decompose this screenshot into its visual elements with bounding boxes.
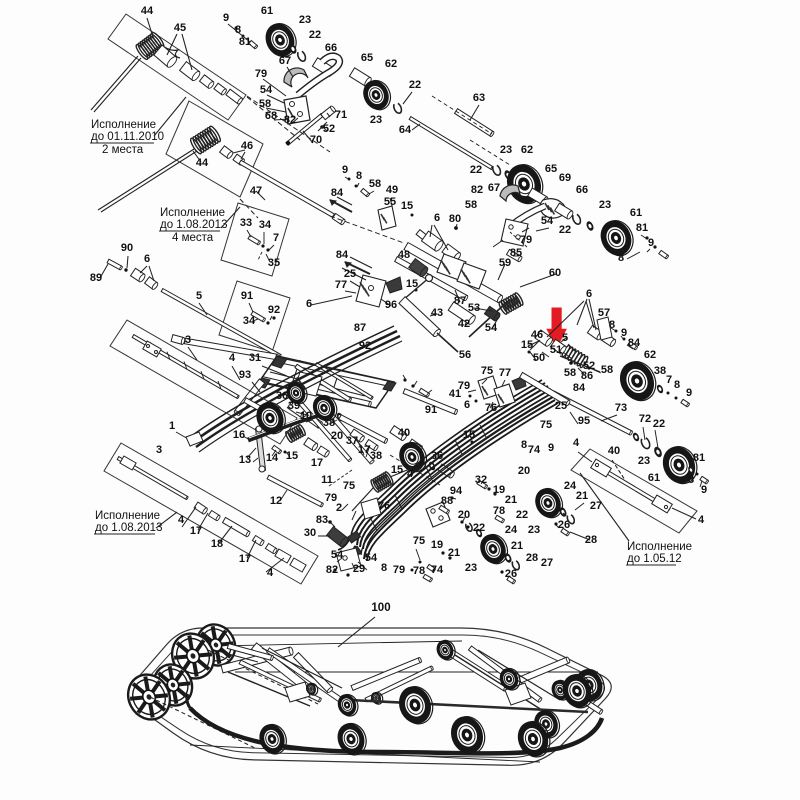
svg-text:44: 44 [196,157,209,169]
svg-text:Исполнение: Исполнение [627,541,692,553]
svg-text:82: 82 [326,564,338,576]
svg-text:62: 62 [521,144,533,156]
svg-text:17: 17 [358,444,370,456]
svg-text:23: 23 [599,199,611,211]
svg-text:54: 54 [260,84,273,96]
svg-text:86: 86 [581,370,593,382]
svg-text:17: 17 [239,553,251,565]
svg-text:67: 67 [279,55,291,67]
svg-text:27: 27 [590,500,602,512]
svg-text:100: 100 [371,602,390,614]
svg-text:13: 13 [239,454,251,466]
svg-text:22: 22 [653,418,665,430]
svg-text:78: 78 [413,565,425,577]
svg-text:9: 9 [548,442,554,454]
svg-text:23: 23 [500,144,512,156]
svg-text:33: 33 [240,217,252,229]
svg-text:75: 75 [481,365,493,377]
svg-text:20: 20 [518,465,530,477]
svg-text:87: 87 [454,295,466,307]
svg-text:54: 54 [541,215,554,227]
svg-text:72: 72 [639,413,651,425]
svg-text:61: 61 [261,5,273,17]
svg-text:74: 74 [528,444,541,456]
svg-text:28: 28 [526,552,538,564]
svg-text:12: 12 [270,495,282,507]
svg-text:54: 54 [331,549,344,561]
svg-text:82: 82 [471,184,483,196]
svg-text:81: 81 [636,222,648,234]
svg-text:58: 58 [564,367,576,379]
svg-text:59: 59 [499,257,511,269]
svg-text:17: 17 [190,525,202,537]
svg-text:56: 56 [459,349,471,361]
svg-text:90: 90 [121,242,133,254]
svg-text:49: 49 [386,184,398,196]
svg-text:5: 5 [562,332,568,344]
svg-text:6: 6 [464,399,470,411]
svg-text:Исполнение: Исполнение [95,510,160,522]
svg-text:31: 31 [249,352,261,364]
svg-text:22: 22 [309,29,321,41]
svg-text:52: 52 [323,123,335,135]
svg-text:92: 92 [359,340,371,352]
svg-text:45: 45 [174,22,186,34]
svg-text:85: 85 [510,247,522,259]
svg-text:9: 9 [621,327,627,339]
svg-text:75: 75 [343,480,355,492]
svg-text:84: 84 [628,337,641,349]
svg-text:62: 62 [385,58,397,70]
svg-text:91: 91 [241,290,253,302]
svg-text:28: 28 [585,534,597,546]
svg-text:75: 75 [540,419,552,431]
svg-text:6: 6 [434,212,440,224]
svg-text:Исполнение: Исполнение [91,119,156,131]
svg-text:26: 26 [505,568,517,580]
svg-text:до 1.05.12: до 1.05.12 [627,553,682,565]
svg-text:73: 73 [615,402,627,414]
svg-text:67: 67 [488,182,500,194]
svg-text:87: 87 [354,322,366,334]
svg-text:42: 42 [458,318,470,330]
svg-text:7: 7 [666,374,672,386]
svg-text:51: 51 [550,344,562,356]
svg-text:36: 36 [431,450,443,462]
svg-text:15: 15 [391,464,403,476]
svg-text:15: 15 [463,429,475,441]
svg-text:22: 22 [409,79,421,91]
svg-text:92: 92 [268,304,280,316]
svg-text:4: 4 [407,468,414,480]
svg-text:65: 65 [361,52,373,64]
svg-text:9: 9 [342,164,348,176]
svg-text:78: 78 [493,505,505,517]
svg-text:53: 53 [468,302,480,314]
svg-text:23: 23 [370,114,382,126]
svg-text:84: 84 [573,382,586,394]
svg-text:88: 88 [441,495,453,507]
svg-text:66: 66 [325,42,337,54]
svg-text:62: 62 [644,349,656,361]
svg-text:95: 95 [578,415,590,427]
svg-text:11: 11 [321,474,333,486]
svg-text:4: 4 [698,514,705,526]
svg-text:23: 23 [528,524,540,536]
svg-text:66: 66 [576,184,588,196]
svg-text:23: 23 [638,455,650,467]
svg-text:5: 5 [196,290,202,302]
svg-text:43: 43 [431,307,443,319]
svg-text:38: 38 [654,365,666,377]
svg-text:34: 34 [243,315,256,327]
svg-text:27: 27 [541,557,553,569]
svg-text:1: 1 [169,420,175,432]
svg-text:91: 91 [425,404,437,416]
svg-text:36: 36 [276,390,288,402]
svg-text:79: 79 [255,68,267,80]
svg-text:71: 71 [335,109,347,121]
svg-text:38: 38 [370,450,382,462]
svg-text:6: 6 [144,253,150,265]
svg-text:8: 8 [674,379,680,391]
svg-text:15: 15 [401,200,413,212]
svg-text:25: 25 [555,400,567,412]
svg-text:40: 40 [608,445,620,457]
svg-text:8: 8 [381,562,387,574]
svg-text:15: 15 [521,339,533,351]
svg-text:21: 21 [576,490,588,502]
svg-text:до 1.08.2013: до 1.08.2013 [95,522,162,534]
svg-text:Исполнение: Исполнение [160,207,225,219]
svg-text:3: 3 [185,334,191,346]
svg-text:35: 35 [268,257,280,269]
svg-text:22: 22 [473,522,485,534]
svg-text:32: 32 [475,474,487,486]
svg-text:74: 74 [431,564,444,576]
svg-text:89: 89 [90,272,102,284]
svg-text:30: 30 [304,527,316,539]
svg-text:24: 24 [505,524,518,536]
svg-text:84: 84 [336,249,349,261]
svg-text:48: 48 [398,249,410,261]
svg-text:19: 19 [431,539,443,551]
svg-text:76: 76 [485,402,497,414]
svg-text:60: 60 [549,267,561,279]
svg-text:8: 8 [356,170,362,182]
svg-text:23: 23 [299,14,311,26]
svg-text:47: 47 [250,185,262,197]
svg-text:61: 61 [630,207,642,219]
svg-text:69: 69 [559,172,571,184]
svg-text:10: 10 [300,410,312,422]
svg-text:81: 81 [239,36,251,48]
svg-text:8: 8 [609,319,615,331]
svg-text:до 01.11.2010: до 01.11.2010 [91,131,164,143]
svg-text:17: 17 [311,457,323,469]
svg-text:77: 77 [335,279,347,291]
svg-text:18: 18 [211,538,223,550]
svg-text:55: 55 [384,196,396,208]
svg-text:77: 77 [499,367,511,379]
svg-text:19: 19 [493,484,505,496]
svg-text:4 места: 4 места [172,232,214,244]
svg-text:3: 3 [156,444,162,456]
svg-text:8: 8 [521,439,527,451]
svg-text:58: 58 [601,364,613,376]
svg-text:57: 57 [598,307,610,319]
svg-text:96: 96 [385,299,397,311]
svg-text:до 1.08.2013: до 1.08.2013 [160,219,227,231]
svg-text:8: 8 [618,252,624,264]
svg-text:9: 9 [701,484,707,496]
svg-text:46: 46 [241,140,253,152]
svg-text:37: 37 [346,435,358,447]
svg-text:8: 8 [688,474,694,486]
svg-text:6: 6 [586,288,592,300]
svg-text:61: 61 [648,472,660,484]
svg-text:68: 68 [265,110,277,122]
svg-text:83: 83 [316,514,328,526]
svg-text:64: 64 [399,124,412,136]
svg-text:54: 54 [485,322,498,334]
svg-text:81: 81 [693,452,705,464]
svg-text:22: 22 [516,509,528,521]
svg-text:4: 4 [573,437,580,449]
svg-text:82: 82 [284,114,296,126]
svg-text:15: 15 [286,450,298,462]
svg-text:54: 54 [365,552,378,564]
svg-text:84: 84 [331,187,344,199]
svg-text:41: 41 [449,388,461,400]
svg-text:21: 21 [511,540,523,552]
svg-text:80: 80 [449,213,461,225]
svg-text:4: 4 [229,352,236,364]
svg-text:65: 65 [545,163,557,175]
svg-text:39: 39 [288,400,300,412]
svg-text:14: 14 [266,452,279,464]
svg-text:79: 79 [393,564,405,576]
svg-text:16: 16 [233,429,245,441]
svg-text:22: 22 [559,224,571,236]
svg-text:8: 8 [235,24,241,36]
svg-text:40: 40 [398,427,410,439]
svg-text:63: 63 [473,92,485,104]
svg-text:20: 20 [458,509,470,521]
svg-text:58: 58 [465,199,477,211]
svg-text:58: 58 [369,178,381,190]
svg-text:26: 26 [558,519,570,531]
svg-text:15: 15 [406,278,418,290]
svg-text:76: 76 [378,500,390,512]
svg-text:23: 23 [465,562,477,574]
svg-text:70: 70 [310,134,322,146]
svg-text:21: 21 [448,547,460,559]
svg-text:21: 21 [505,494,517,506]
svg-text:58: 58 [259,98,271,110]
svg-text:50: 50 [533,352,545,364]
svg-text:2: 2 [336,502,342,514]
svg-text:4: 4 [267,567,274,579]
svg-text:75: 75 [413,535,425,547]
svg-text:29: 29 [353,563,365,575]
svg-text:7: 7 [273,232,279,244]
svg-text:20: 20 [331,430,343,442]
svg-text:79: 79 [520,234,532,246]
svg-text:9: 9 [648,237,654,249]
svg-text:4: 4 [178,514,185,526]
svg-text:2 места: 2 места [102,144,144,156]
svg-text:9: 9 [686,387,692,399]
svg-text:9: 9 [223,12,229,24]
svg-text:93: 93 [239,369,251,381]
svg-text:34: 34 [259,219,272,231]
svg-text:22: 22 [470,164,482,176]
svg-text:44: 44 [141,5,154,17]
svg-text:6: 6 [306,298,312,310]
svg-text:38: 38 [323,417,335,429]
